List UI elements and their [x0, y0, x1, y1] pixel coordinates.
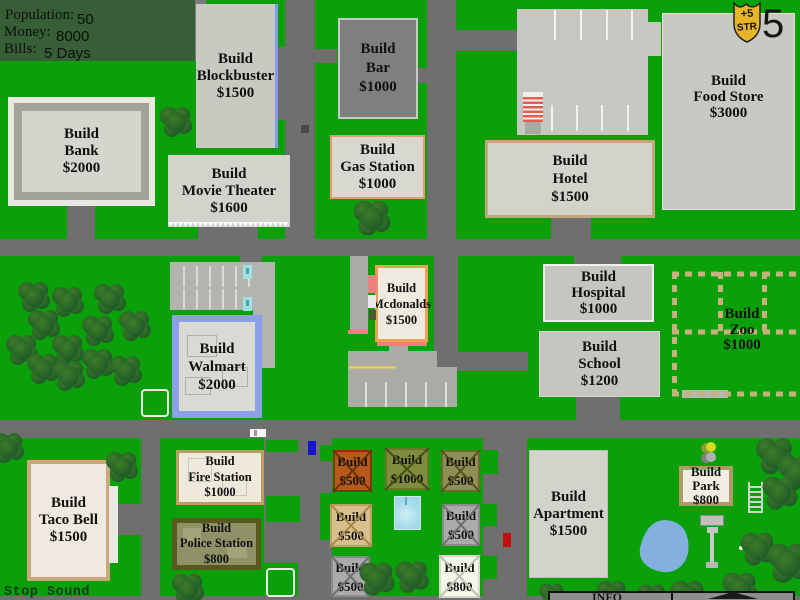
- svg-text:+5: +5: [740, 8, 753, 21]
- svg-text:STR: STR: [737, 21, 758, 33]
